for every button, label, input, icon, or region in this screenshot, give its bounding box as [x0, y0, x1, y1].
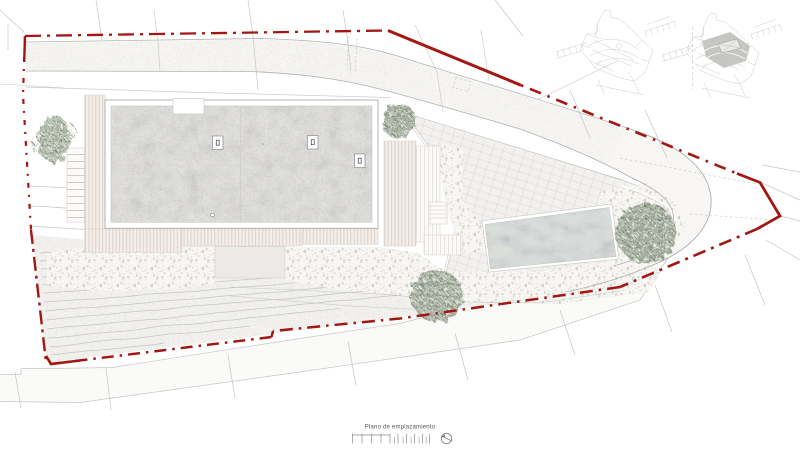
svg-text:Plano de emplazamiento: Plano de emplazamiento — [365, 425, 436, 431]
